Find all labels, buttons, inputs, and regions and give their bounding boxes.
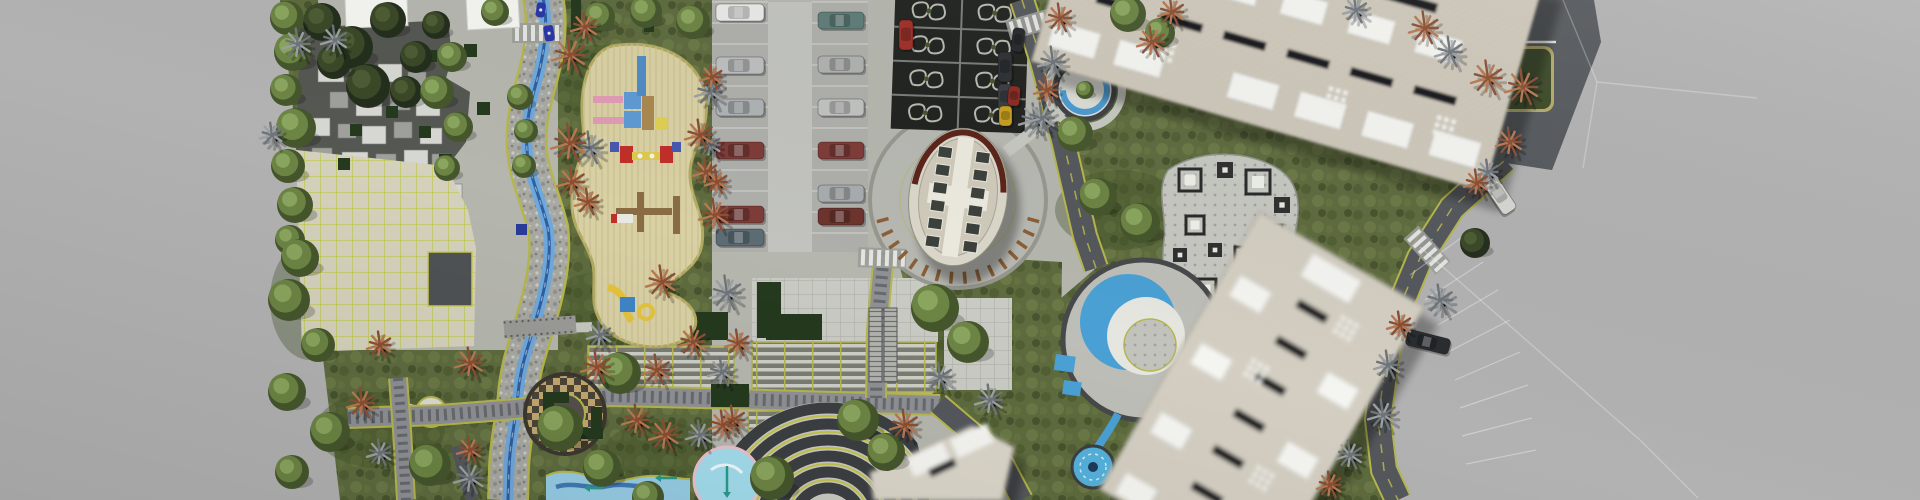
master-plan-svg [0, 0, 1920, 500]
site-plan-render [0, 0, 1920, 500]
lighting-vignette [0, 0, 1920, 500]
